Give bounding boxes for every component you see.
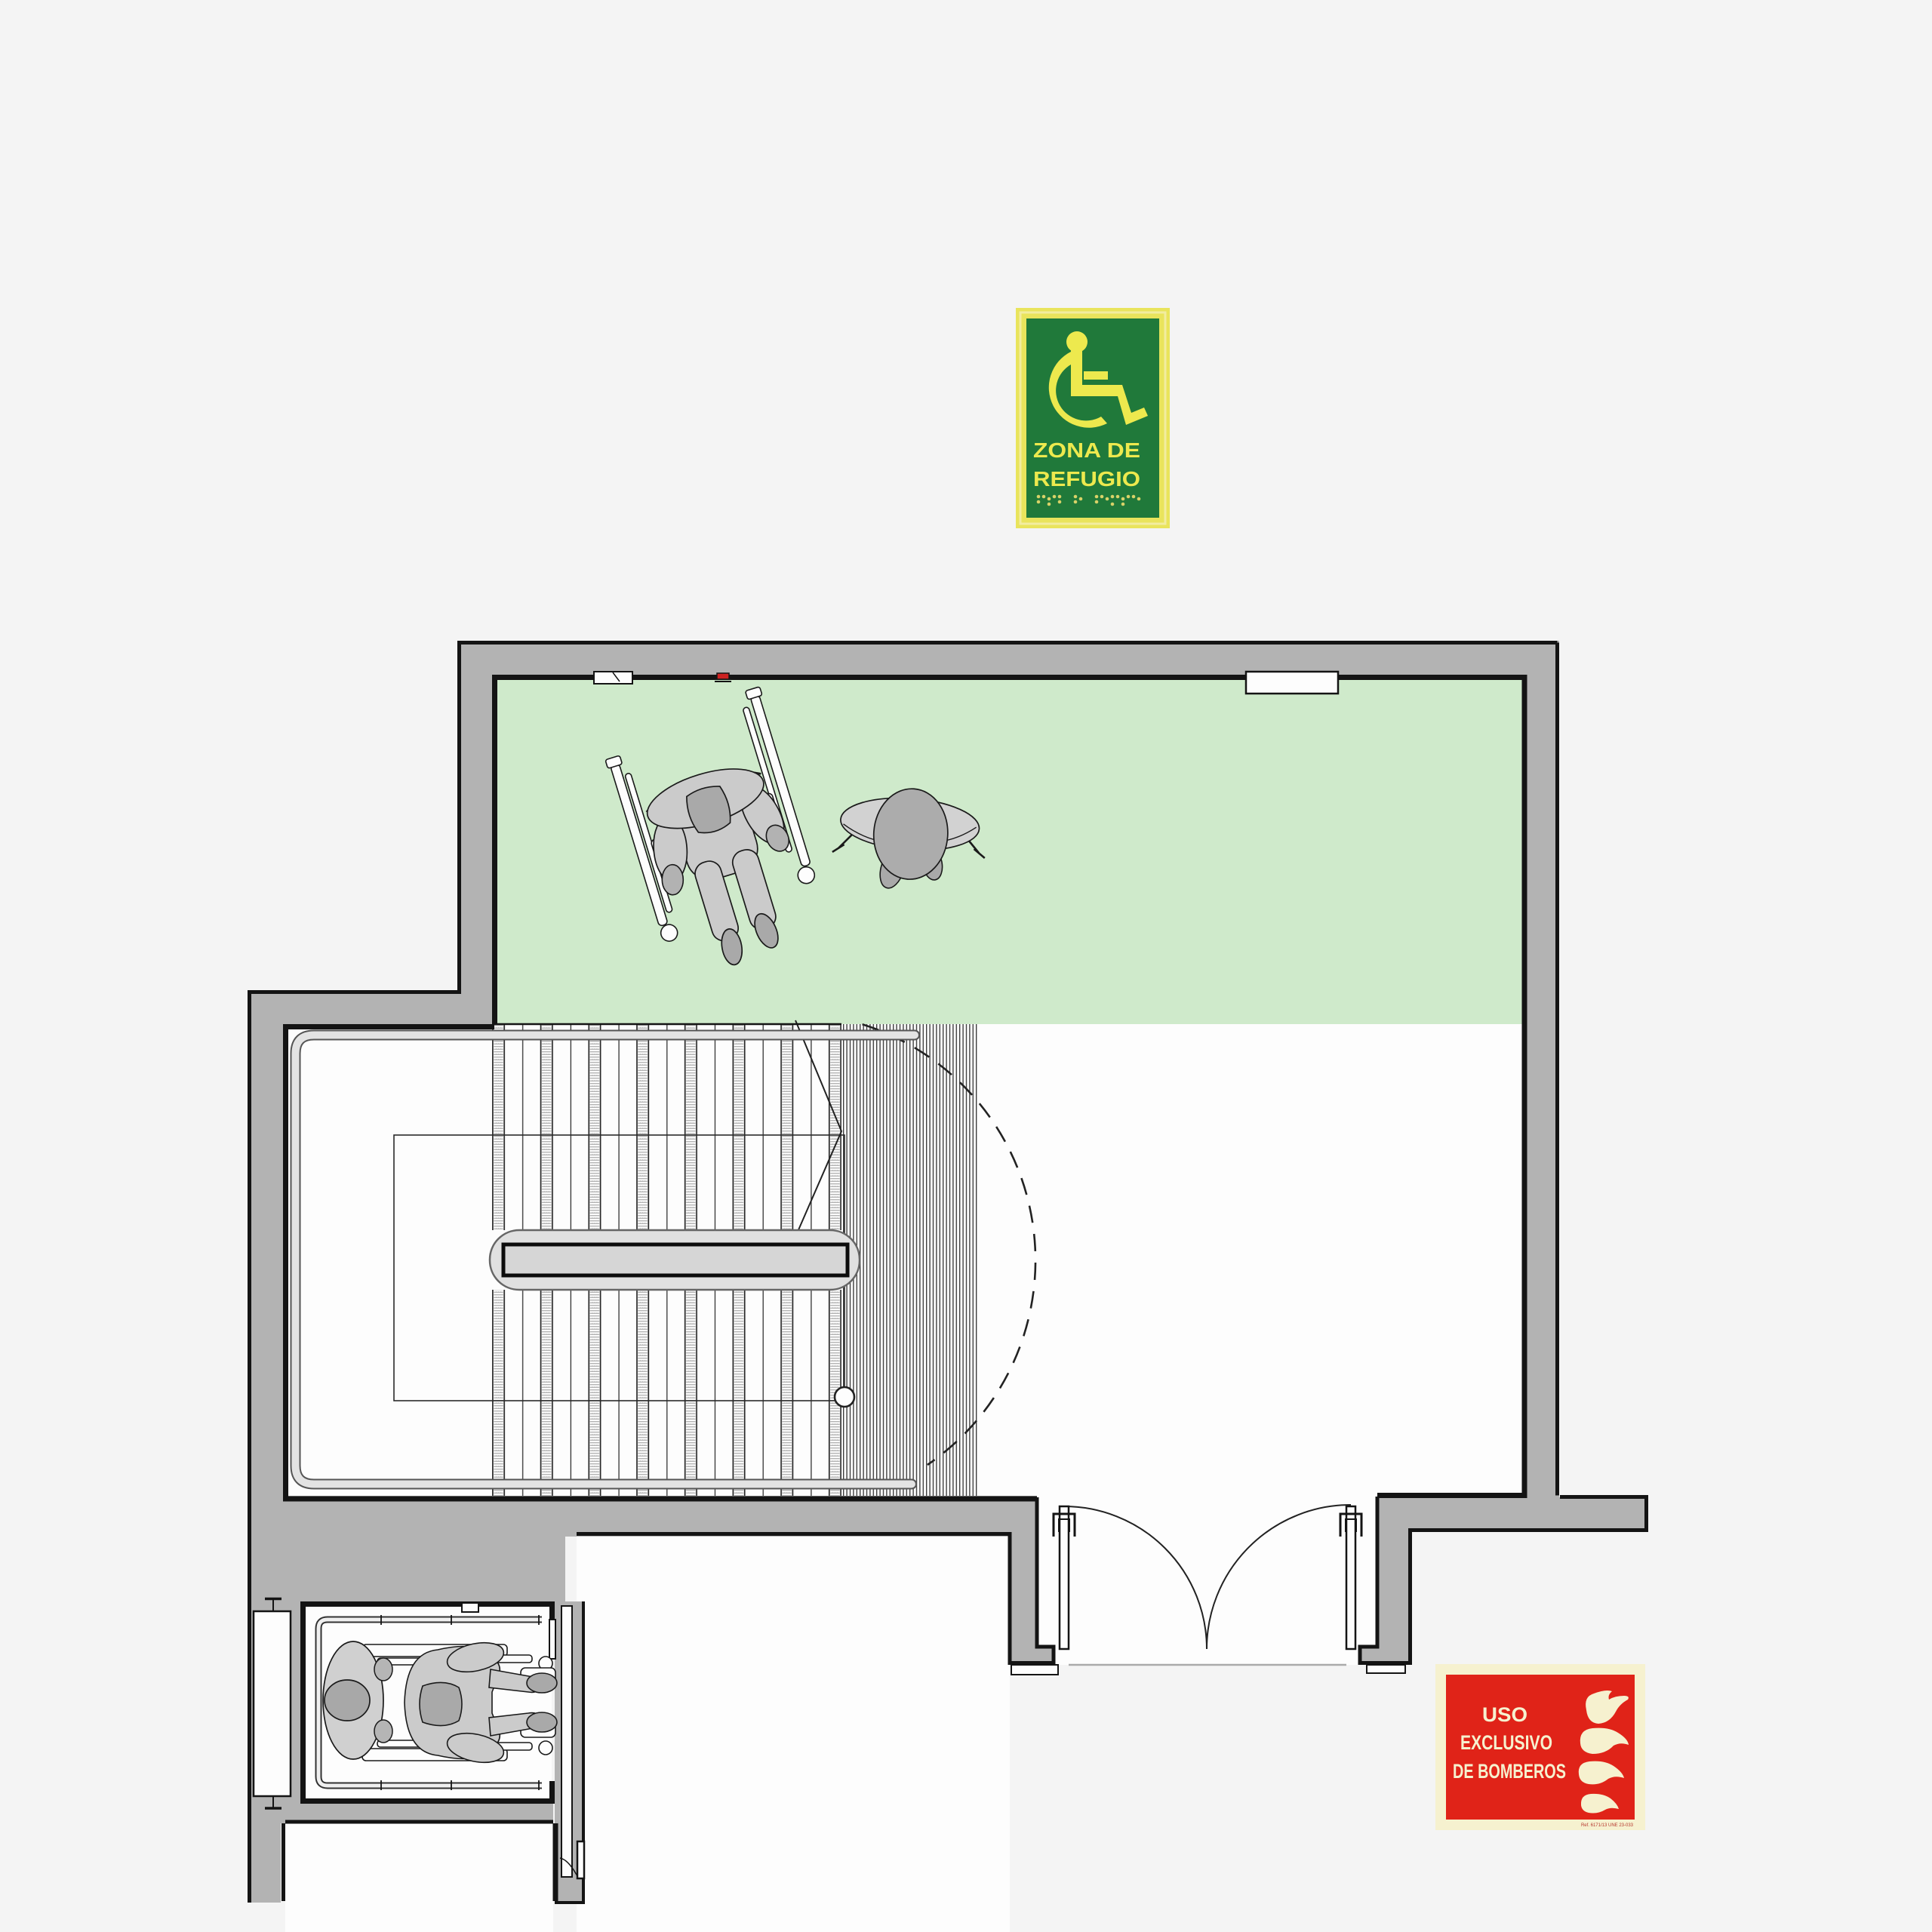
svg-text:ZONA DE: ZONA DE [1033,438,1140,462]
svg-text:Ref. 6171/13 UNE 23-033: Ref. 6171/13 UNE 23-033 [1581,1823,1634,1828]
svg-text:DE BOMBEROS: DE BOMBEROS [1453,1760,1566,1783]
svg-text:USO: USO [1482,1703,1527,1726]
svg-text:EXCLUSIVO: EXCLUSIVO [1460,1731,1552,1754]
svg-text:REFUGIO: REFUGIO [1033,467,1140,491]
